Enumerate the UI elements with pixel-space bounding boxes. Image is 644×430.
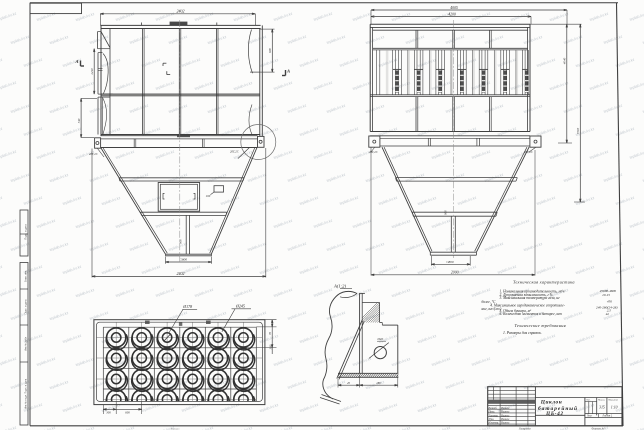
svg-text:2402: 2402 [177,9,185,14]
svg-text:Ø40: Ø40 [377,337,384,341]
svg-text:Технические требования: Технические требования [515,323,566,328]
svg-text:А(1:2): А(1:2) [333,284,346,289]
svg-text:Масштаб: Масштаб [609,400,619,402]
svg-text:Пров.: Пров. [488,411,496,414]
svg-text:740: 740 [77,118,81,123]
svg-text:ЦБ-42: ЦБ-42 [545,412,564,417]
svg-text:Взам. инв.: Взам. инв. [25,270,28,282]
svg-text:батарейный: батарейный [538,405,578,412]
svg-text:□800: □800 [180,258,187,262]
svg-text:600: 600 [125,411,130,415]
svg-text:Инв № подл. Подп. и дата: Инв № подл. Подп. и дата [25,378,28,409]
svg-text:Н.контр.: Н.контр. [488,422,500,425]
svg-text:2402: 2402 [177,271,185,276]
svg-text:2000: 2000 [451,271,459,275]
svg-text:А: А [286,69,290,74]
svg-text:Инв № дубл: Инв № дубл [25,336,28,351]
svg-text:А: А [75,59,79,64]
svg-text:4. Максимальное аэродинамичес: 4. Максимальное аэродинамическое сопроти… [490,304,565,308]
svg-text:Иванов: Иванов [500,407,510,410]
svg-text:Подп. и дата: Подп. и дата [24,224,28,240]
svg-text:Ø245: Ø245 [235,304,245,309]
svg-text:Подп. и дата: Подп. и дата [25,299,28,314]
svg-text:4200: 4200 [448,12,456,16]
svg-text:Разраб.: Разраб. [488,407,498,410]
svg-text:Листов 1: Листов 1 [603,415,613,418]
svg-text:Утв.: Утв. [489,418,495,421]
svg-text:Масса: Масса [598,400,605,402]
svg-text:Ø178: Ø178 [182,304,192,309]
svg-text:7505: 7505 [576,127,580,134]
svg-text:1. Размеры для справок.: 1. Размеры для справок. [503,331,542,335]
svg-text:900: 900 [444,210,448,215]
svg-text:Циклон: Циклон [540,399,563,405]
svg-text:10-15: 10-15 [602,293,610,297]
svg-text:4040: 4040 [562,57,566,64]
svg-text:Лист: Лист [587,415,593,418]
svg-text:Иванов: Иванов [500,418,510,421]
svg-text:Иванов: Иванов [500,414,510,417]
svg-text:45: 45 [347,381,351,385]
svg-text:Иванов: Иванов [500,411,510,414]
svg-text:450: 450 [607,300,612,304]
svg-text:900: 900 [179,239,183,244]
svg-text:315: 315 [599,406,605,410]
svg-text:1410: 1410 [90,68,94,75]
svg-text:70: 70 [268,332,272,336]
svg-text:Т.контр.: Т.контр. [489,414,499,417]
svg-text:□800: □800 [446,260,453,264]
svg-text:180: 180 [376,381,381,385]
svg-text:Иванов: Иванов [500,422,510,425]
svg-text:Техническая характеристика: Техническая характеристика [513,280,575,285]
svg-text:Лит.: Лит. [586,400,590,402]
svg-text:300: 300 [268,344,272,349]
svg-text:1:10: 1:10 [611,406,618,410]
svg-text:42: 42 [606,312,610,316]
svg-text:300: 300 [106,411,111,415]
svg-text:100: 100 [206,194,211,198]
svg-text:4005: 4005 [450,6,458,10]
svg-text:600: 600 [268,48,272,53]
